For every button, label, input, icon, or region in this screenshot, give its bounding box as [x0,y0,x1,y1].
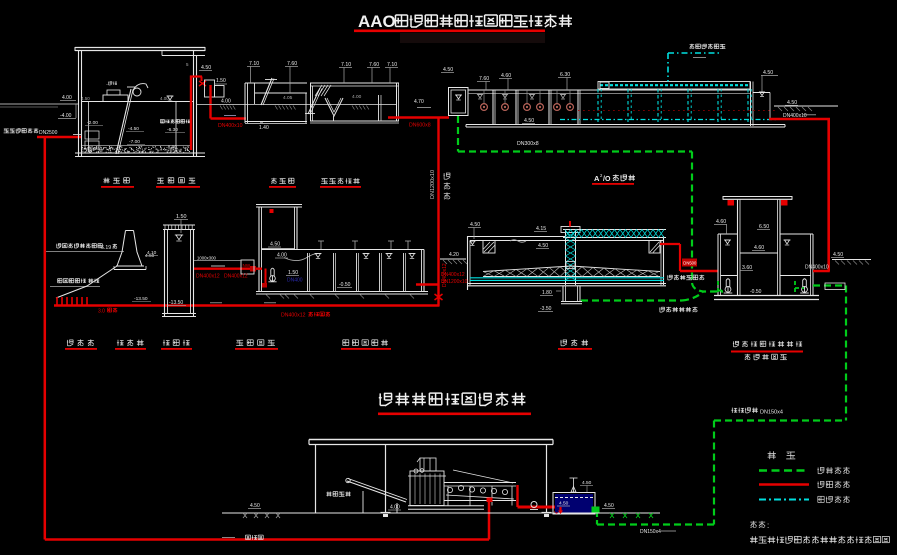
svg-text:-13.50: -13.50 [134,296,148,302]
svg-text:7.10: 7.10 [341,62,351,68]
svg-text:DN400x12: DN400x12 [441,272,465,278]
svg-text:6.30: 6.30 [560,72,570,78]
svg-text:4.50: 4.50 [470,222,480,228]
svg-text:DN400x10: DN400x10 [218,123,243,129]
svg-text:4.10: 4.10 [147,250,157,256]
svg-text:4.50: 4.50 [270,242,280,248]
svg-text:1000x300: 1000x300 [197,256,216,261]
svg-text:1.40: 1.40 [259,125,269,131]
svg-text:4.50: 4.50 [443,67,453,73]
svg-text:7.10: 7.10 [249,61,259,67]
svg-text:7.60: 7.60 [369,62,379,68]
svg-text:DN150x4: DN150x4 [640,529,661,535]
svg-text:4.00: 4.00 [277,253,287,259]
svg-text:DN400x10: DN400x10 [805,265,829,271]
svg-text:7.10: 7.10 [387,62,397,68]
svg-text:4.60: 4.60 [501,73,511,79]
svg-text:-2.00: -2.00 [87,120,98,126]
svg-text:NW: NW [243,263,251,268]
svg-text:DN600x8: DN600x8 [409,123,431,129]
svg-text:4.20: 4.20 [449,252,459,258]
svg-text:-0.50: -0.50 [339,282,351,288]
svg-text:6.50: 6.50 [759,224,769,230]
svg-text:-4.50: -4.50 [128,126,139,132]
svg-text:4.70: 4.70 [414,99,424,105]
svg-text:3.0: 3.0 [98,309,105,315]
svg-text:4.60: 4.60 [754,245,764,251]
svg-text:4.50: 4.50 [81,96,90,101]
svg-text:DN400x12: DN400x12 [224,274,248,280]
svg-text:4.50: 4.50 [582,480,592,486]
svg-text:-3.50: -3.50 [540,306,552,312]
svg-text:4.15: 4.15 [536,226,546,232]
svg-text:6.19: 6.19 [101,245,111,251]
svg-text:DN400x12: DN400x12 [281,313,306,319]
svg-text:4.50: 4.50 [604,503,614,509]
svg-text:DN400x12: DN400x12 [196,274,220,280]
svg-text:4.50: 4.50 [763,70,773,76]
svg-text:-4.00: -4.00 [60,113,72,119]
svg-text:DN300x8: DN300x8 [517,141,539,147]
svg-text:1.50: 1.50 [288,270,298,276]
svg-text:4.00: 4.00 [62,95,72,101]
svg-text:1.50: 1.50 [176,214,187,220]
svg-text:4.50: 4.50 [538,243,548,249]
svg-text:-6.30: -6.30 [167,127,178,133]
svg-text:DN150x4: DN150x4 [760,410,783,416]
svg-text:4.00: 4.00 [352,94,362,100]
svg-text:/O: /O [603,176,611,183]
svg-text:4.50: 4.50 [201,65,211,71]
svg-text:-0.50: -0.50 [750,289,762,295]
svg-text:DN2500: DN2500 [39,130,58,136]
svg-text::: : [767,521,769,530]
svg-text:-7.00: -7.00 [129,139,140,145]
svg-text:4.50: 4.50 [833,252,843,258]
svg-text:1.50: 1.50 [216,78,226,84]
svg-text:4.50: 4.50 [524,118,534,124]
svg-text:DN500: DN500 [683,261,697,266]
svg-text:4.60: 4.60 [716,219,726,225]
svg-text:4.50: 4.50 [559,501,569,507]
svg-text:4.00: 4.00 [390,505,400,511]
svg-text:4.00: 4.00 [160,96,169,101]
svg-text:4.00: 4.00 [221,99,231,105]
svg-text:DN1200x10: DN1200x10 [430,170,436,199]
svg-text:7.60: 7.60 [287,61,297,67]
svg-text:1.80: 1.80 [542,290,552,296]
svg-text:7.60: 7.60 [479,76,489,82]
svg-text:3.60: 3.60 [742,265,752,271]
svg-text:DN400: DN400 [287,278,303,284]
svg-text:-8.00: -8.00 [166,145,177,151]
svg-text:4.05: 4.05 [283,95,293,101]
svg-text:DN1200x10: DN1200x10 [441,279,468,285]
svg-text:AAO: AAO [358,12,396,31]
svg-text:4.50: 4.50 [250,503,260,509]
